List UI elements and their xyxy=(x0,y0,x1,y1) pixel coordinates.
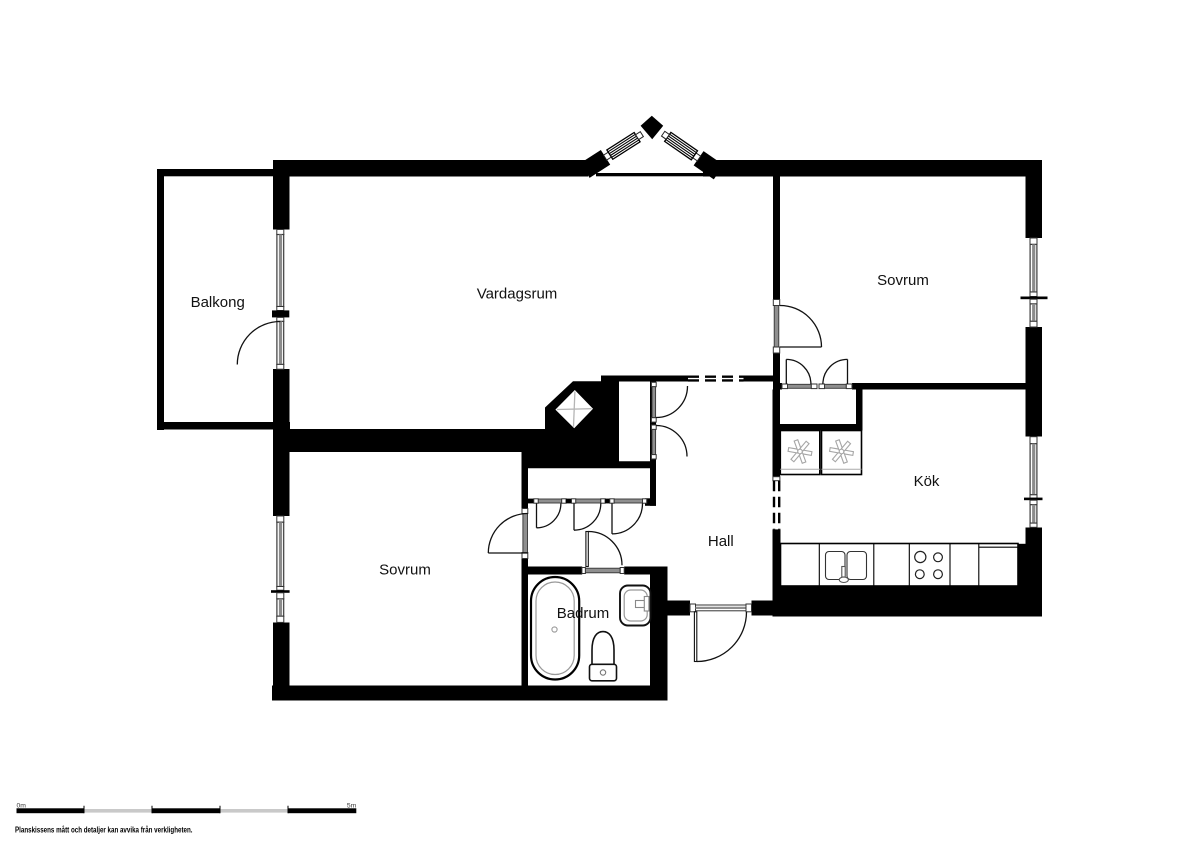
svg-text:Hall: Hall xyxy=(708,533,734,550)
svg-text:Sovrum: Sovrum xyxy=(379,562,431,579)
svg-text:Planskissens mått och detaljer: Planskissens mått och detaljer kan avvik… xyxy=(15,825,193,835)
svg-text:Kök: Kök xyxy=(914,473,940,490)
svg-text:Sovrum: Sovrum xyxy=(877,272,929,289)
svg-text:5m: 5m xyxy=(347,802,357,809)
svg-text:Vardagsrum: Vardagsrum xyxy=(477,285,558,302)
svg-text:0m: 0m xyxy=(17,802,27,809)
svg-text:Balkong: Balkong xyxy=(191,294,245,311)
svg-text:Badrum: Badrum xyxy=(557,605,610,622)
